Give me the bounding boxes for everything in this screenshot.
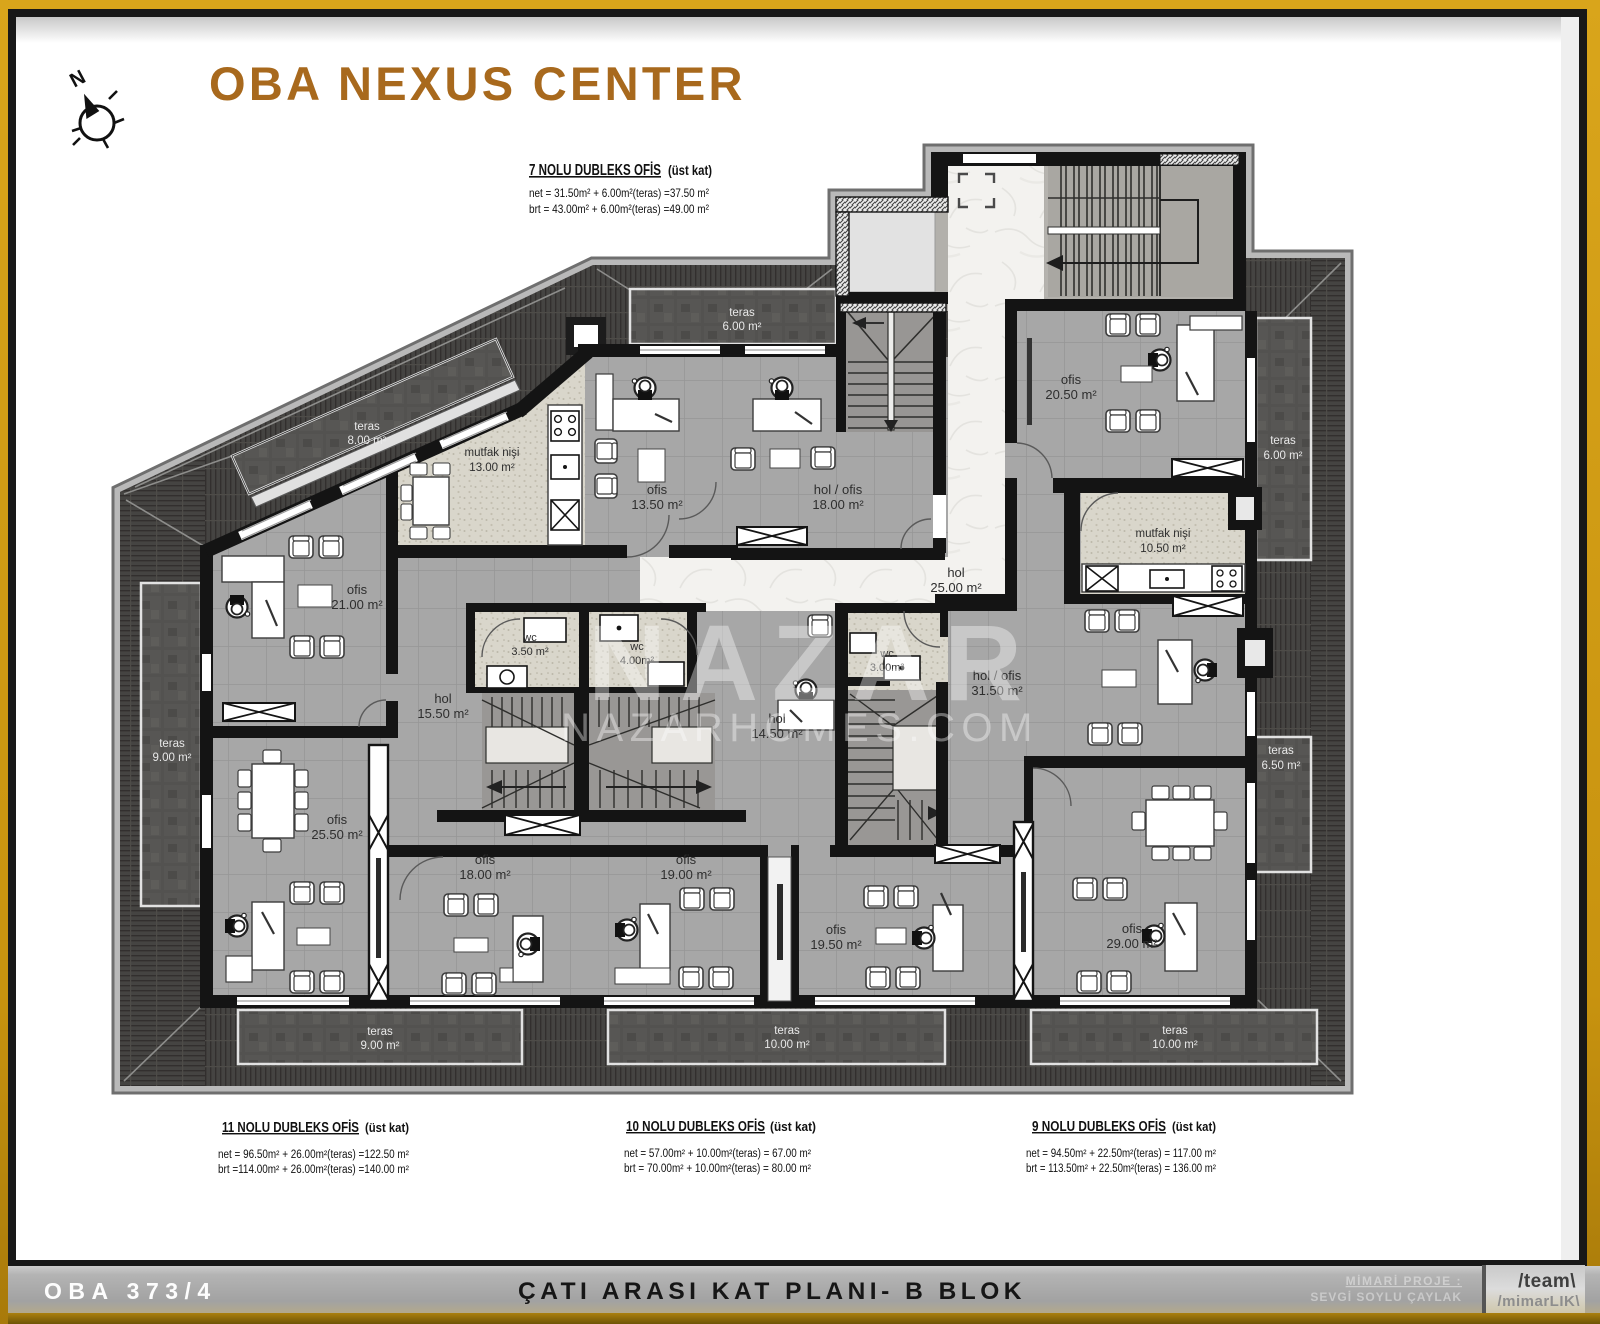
svg-text:ofis: ofis <box>475 852 496 867</box>
svg-text:(üst kat): (üst kat) <box>1172 1120 1216 1134</box>
svg-text:25.50 m²: 25.50 m² <box>311 827 363 842</box>
svg-text:/mimarLIK\: /mimarLIK\ <box>1497 1293 1580 1310</box>
svg-text:6.00 m²: 6.00 m² <box>1264 450 1303 462</box>
svg-text:10.50 m²: 10.50 m² <box>1140 543 1186 555</box>
svg-text:ofis: ofis <box>347 582 368 597</box>
svg-text:teras: teras <box>774 1025 800 1037</box>
svg-text:(üst kat): (üst kat) <box>365 1121 409 1135</box>
svg-text:teras: teras <box>729 307 755 319</box>
svg-text:ofis: ofis <box>1061 372 1082 387</box>
svg-text:7 NOLU DUBLEKS OFİS: 7 NOLU DUBLEKS OFİS <box>529 161 661 179</box>
svg-text:13.00 m²: 13.00 m² <box>469 462 515 474</box>
svg-text:19.50 m²: 19.50 m² <box>810 937 862 952</box>
svg-text:(üst kat): (üst kat) <box>770 1120 816 1134</box>
svg-text:15.50 m²: 15.50 m² <box>417 706 469 721</box>
svg-text:brt = 70.00m² + 10.00m²(teras: brt = 70.00m² + 10.00m²(teras) = 80.00 m… <box>624 1163 811 1175</box>
svg-text:NAZAR: NAZAR <box>588 602 1036 723</box>
svg-text:ofis: ofis <box>676 852 697 867</box>
svg-text:18.00 m²: 18.00 m² <box>459 867 511 882</box>
svg-text:11 NOLU DUBLEKS OFİS: 11 NOLU DUBLEKS OFİS <box>222 1119 359 1136</box>
svg-text:19.00 m²: 19.00 m² <box>660 867 712 882</box>
svg-text:net = 96.50m² + 26.00m²(teras: net = 96.50m² + 26.00m²(teras) =122.50 m… <box>218 1149 409 1161</box>
svg-text:6.00 m²: 6.00 m² <box>723 321 762 333</box>
svg-text:teras: teras <box>1270 435 1296 447</box>
svg-text:mutfak nişi: mutfak nişi <box>465 447 520 459</box>
svg-text:teras: teras <box>159 738 185 750</box>
svg-text:29.00 m²: 29.00 m² <box>1106 936 1158 951</box>
svg-text:teras: teras <box>354 421 380 433</box>
svg-text:3.50 m²: 3.50 m² <box>511 646 549 658</box>
svg-text:brt =114.00m² + 26.00m²(teras: brt =114.00m² + 26.00m²(teras) =140.00 m… <box>218 1164 409 1176</box>
svg-text:teras: teras <box>1268 745 1294 757</box>
svg-text:13.50 m²: 13.50 m² <box>631 497 683 512</box>
svg-text:SEVGİ SOYLU ÇAYLAK: SEVGİ SOYLU ÇAYLAK <box>1310 1289 1462 1304</box>
svg-text:10 NOLU DUBLEKS OFİS: 10 NOLU DUBLEKS OFİS <box>626 1118 765 1135</box>
svg-text:hol / ofis: hol / ofis <box>814 482 863 497</box>
svg-text:ÇATI ARASI KAT PLANI- B BLOK: ÇATI ARASI KAT PLANI- B BLOK <box>518 1278 1026 1305</box>
svg-text:6.50 m²: 6.50 m² <box>1262 760 1301 772</box>
svg-text:OBA 373/4: OBA 373/4 <box>44 1278 217 1304</box>
svg-text:net = 94.50m² + 22.50m²(tera: net = 94.50m² + 22.50m²(teras) = 117.00 … <box>1026 1148 1216 1160</box>
svg-text:8.00 m²: 8.00 m² <box>348 435 387 447</box>
svg-text:10.00 m²: 10.00 m² <box>764 1039 810 1051</box>
svg-text:9.00 m²: 9.00 m² <box>361 1040 400 1052</box>
svg-text:OBA NEXUS CENTER: OBA NEXUS CENTER <box>209 57 746 110</box>
svg-text:net = 31.50m² + 6.00m²(teras): net = 31.50m² + 6.00m²(teras) =37.50 m² <box>529 186 709 200</box>
svg-text:ofis: ofis <box>1122 921 1143 936</box>
svg-text:ofis: ofis <box>826 922 847 937</box>
svg-text:(üst kat): (üst kat) <box>668 163 712 178</box>
svg-text:21.00 m²: 21.00 m² <box>331 597 383 612</box>
svg-text:/team\: /team\ <box>1518 1271 1576 1292</box>
svg-text:brt = 113.50m² + 22.50m²(tera: brt = 113.50m² + 22.50m²(teras) = 136.00… <box>1026 1163 1216 1175</box>
svg-text:ofis: ofis <box>327 812 348 827</box>
svg-text:mutfak nişi: mutfak nişi <box>1136 528 1191 540</box>
svg-text:10.00 m²: 10.00 m² <box>1152 1039 1198 1051</box>
svg-text:MİMARİ PROJE :: MİMARİ PROJE : <box>1346 1273 1462 1288</box>
svg-text:teras: teras <box>367 1026 393 1038</box>
svg-text:hol: hol <box>947 565 964 580</box>
svg-text:25.00 m²: 25.00 m² <box>930 580 982 595</box>
svg-text:hol: hol <box>434 691 451 706</box>
svg-text:ofis: ofis <box>647 482 668 497</box>
svg-text:wc: wc <box>522 632 537 644</box>
svg-text:18.00 m²: 18.00 m² <box>812 497 864 512</box>
svg-text:net = 57.00m² + 10.00m²(teras): net = 57.00m² + 10.00m²(teras) = 67.00 m… <box>624 1148 811 1160</box>
svg-text:9 NOLU DUBLEKS OFİS: 9 NOLU DUBLEKS OFİS <box>1032 1118 1166 1135</box>
svg-text:NAZARHOMES.COM: NAZARHOMES.COM <box>561 706 1039 750</box>
svg-text:brt = 43.00m² + 6.00m²(teras): brt = 43.00m² + 6.00m²(teras) =49.00 m² <box>529 202 709 216</box>
svg-text:9.00 m²: 9.00 m² <box>153 752 192 764</box>
svg-text:teras: teras <box>1162 1025 1188 1037</box>
svg-text:20.50 m²: 20.50 m² <box>1045 387 1097 402</box>
